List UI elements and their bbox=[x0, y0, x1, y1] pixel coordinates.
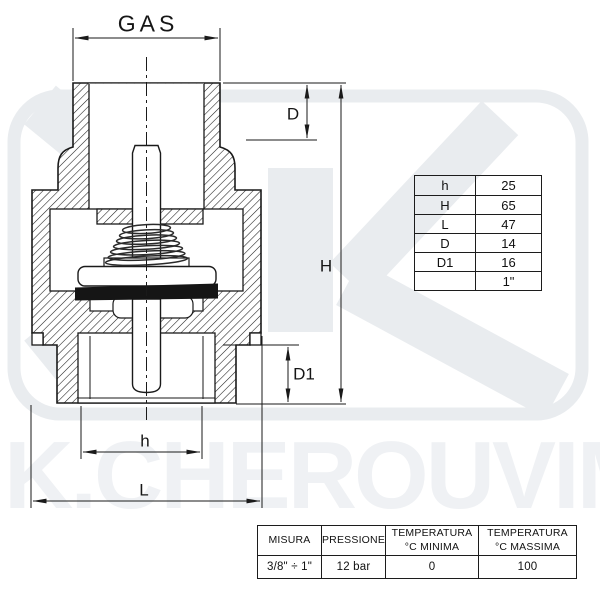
dim-value: 1" bbox=[476, 272, 541, 290]
spec-header-line: TEMPERATURA bbox=[392, 527, 473, 540]
spec-header-line: PRESSIONE bbox=[322, 534, 385, 547]
spec-value-temp-minima: 0 bbox=[386, 556, 479, 578]
dim-value: 47 bbox=[476, 215, 541, 233]
dim-key: L bbox=[415, 215, 476, 233]
table-row: h 25 bbox=[415, 176, 541, 195]
spec-header-line: °C MASSIMA bbox=[495, 541, 560, 554]
dimensions-table: h 25 H 65 L 47 D 14 D1 16 1" bbox=[414, 175, 542, 291]
dim-key: H bbox=[415, 196, 476, 214]
spec-header-temp-minima: TEMPERATURA °C MINIMA bbox=[386, 526, 479, 556]
dim-label-gas: GAS bbox=[114, 13, 179, 36]
spec-header-line: TEMPERATURA bbox=[487, 527, 568, 540]
table-row: H 65 bbox=[415, 195, 541, 214]
dim-label-l: L bbox=[139, 482, 148, 499]
valve-drawing bbox=[0, 0, 600, 600]
stage: K.CHEROUVIM bbox=[0, 0, 600, 600]
flange-lip-right bbox=[250, 333, 261, 345]
dim-value: 14 bbox=[476, 234, 541, 252]
spec-value-temp-massima: 100 bbox=[479, 556, 576, 578]
dim-value: 25 bbox=[476, 176, 541, 195]
dim-key bbox=[415, 272, 476, 290]
spec-header-line: MISURA bbox=[268, 534, 310, 547]
dim-value: 65 bbox=[476, 196, 541, 214]
dim-key: D1 bbox=[415, 253, 476, 271]
dim-key: h bbox=[415, 176, 476, 195]
spec-value-misura: 3/8" ÷ 1" bbox=[258, 556, 322, 578]
dim-value: 16 bbox=[476, 253, 541, 271]
dim-label-d1: D1 bbox=[293, 366, 315, 383]
spec-header-line: °C MINIMA bbox=[405, 541, 459, 554]
dim-key: D bbox=[415, 234, 476, 252]
spec-header-temp-massima: TEMPERATURA °C MASSIMA bbox=[479, 526, 576, 556]
flange-lip-left bbox=[32, 333, 43, 345]
dim-label-h-total: H bbox=[320, 258, 332, 275]
spec-header-misura: MISURA bbox=[258, 526, 322, 556]
table-row: L 47 bbox=[415, 214, 541, 233]
table-row: D 14 bbox=[415, 233, 541, 252]
spec-header-pressione: PRESSIONE bbox=[322, 526, 386, 556]
specs-table: MISURA PRESSIONE TEMPERATURA °C MINIMA T… bbox=[257, 525, 577, 579]
spec-value-pressione: 12 bar bbox=[322, 556, 386, 578]
dim-label-d: D bbox=[287, 106, 299, 123]
table-row: D1 16 bbox=[415, 252, 541, 271]
dim-label-h-inner: h bbox=[140, 433, 149, 450]
table-row: 1" bbox=[415, 271, 541, 290]
